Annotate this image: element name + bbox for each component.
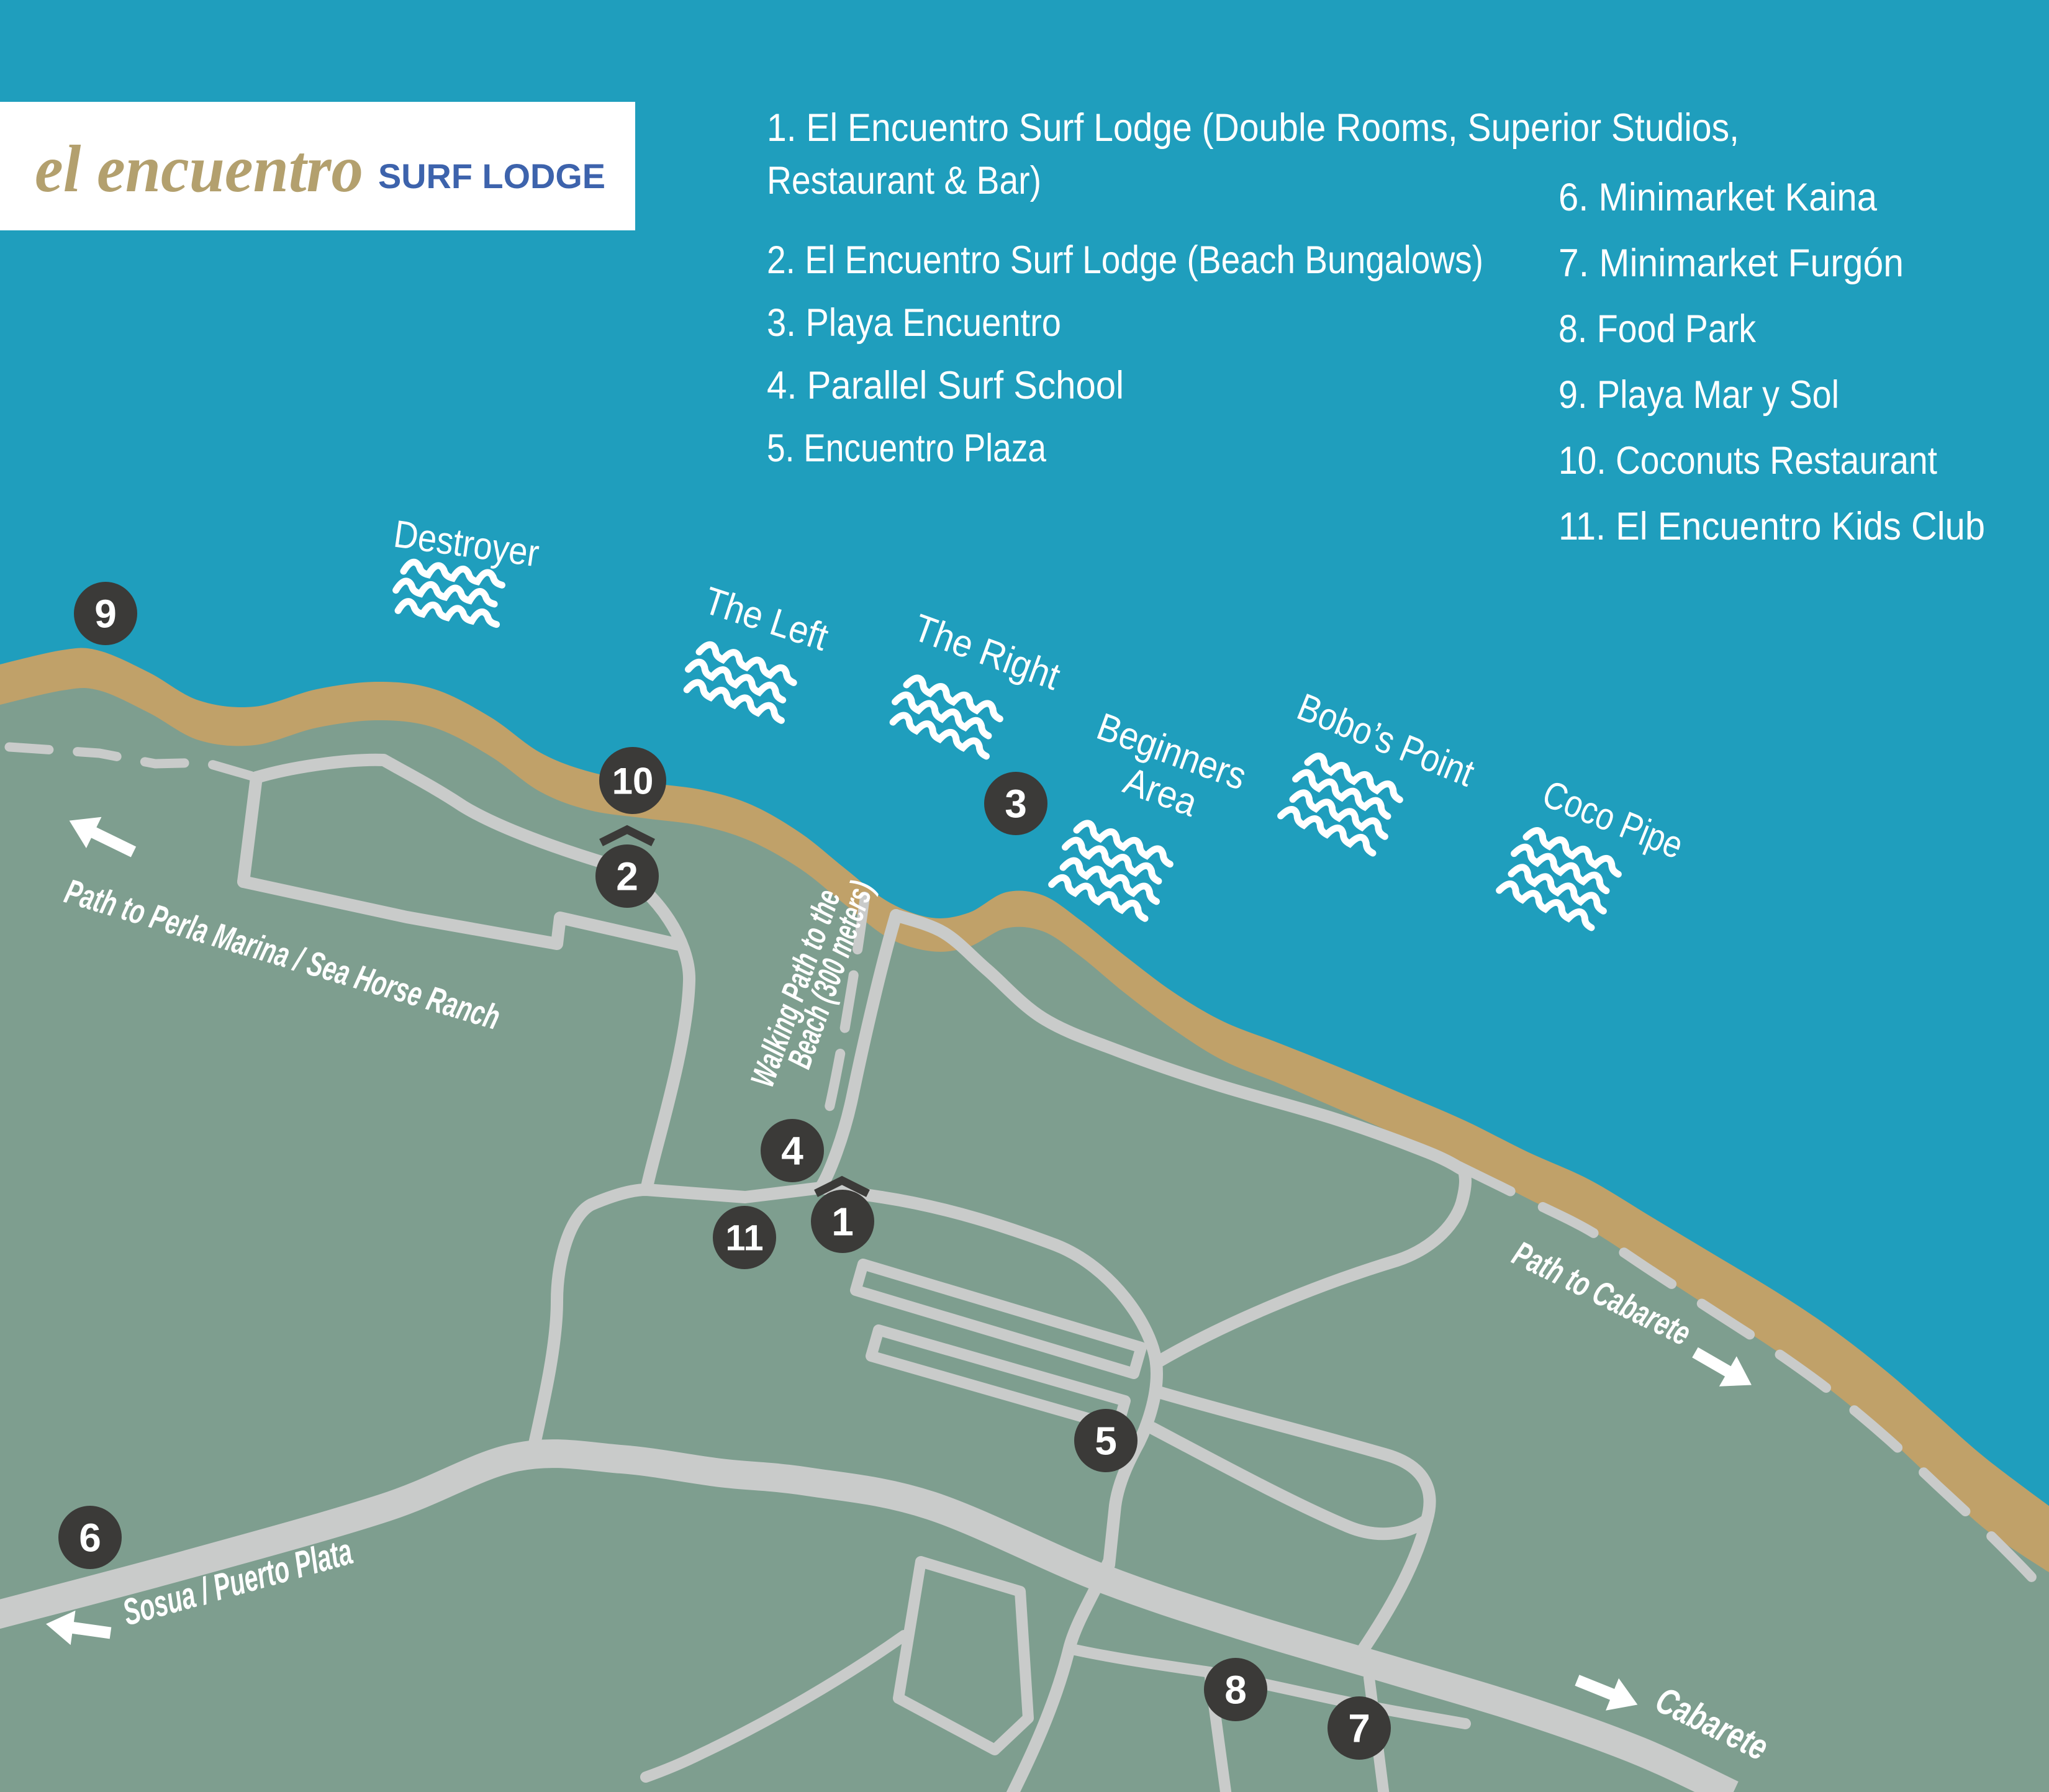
svg-text:3. Playa Encuentro: 3. Playa Encuentro: [767, 301, 1061, 345]
svg-text:1. El Encuentro Surf Lodge (Do: 1. El Encuentro Surf Lodge (Double Rooms…: [767, 106, 1739, 150]
svg-text:10. Coconuts Restaurant: 10. Coconuts Restaurant: [1558, 439, 1937, 482]
svg-text:4: 4: [781, 1129, 803, 1174]
svg-text:7. Minimarket Furgón: 7. Minimarket Furgón: [1558, 242, 1904, 285]
svg-text:8: 8: [1224, 1668, 1247, 1713]
svg-text:5. Encuentro Plaza: 5. Encuentro Plaza: [767, 427, 1047, 470]
svg-text:4. Parallel Surf School: 4. Parallel Surf School: [767, 364, 1124, 407]
svg-text:6. Minimarket Kaina: 6. Minimarket Kaina: [1558, 176, 1878, 219]
svg-text:el encuentro: el encuentro: [35, 132, 363, 206]
svg-text:8. Food Park: 8. Food Park: [1558, 307, 1756, 351]
svg-text:Restaurant & Bar): Restaurant & Bar): [767, 159, 1041, 202]
svg-text:11: 11: [725, 1218, 763, 1259]
svg-text:9. Playa Mar y Sol: 9. Playa Mar y Sol: [1558, 373, 1839, 417]
svg-text:10: 10: [612, 760, 654, 802]
svg-text:2. El Encuentro Surf Lodge (Be: 2. El Encuentro Surf Lodge (Beach Bungal…: [767, 238, 1483, 282]
svg-text:2: 2: [616, 854, 638, 899]
svg-text:5: 5: [1095, 1419, 1117, 1464]
svg-text:9: 9: [94, 592, 117, 636]
svg-text:SURF LODGE: SURF LODGE: [378, 156, 605, 196]
svg-text:7: 7: [1348, 1706, 1370, 1751]
svg-text:11. El Encuentro Kids Club: 11. El Encuentro Kids Club: [1558, 505, 1985, 548]
svg-text:1: 1: [831, 1200, 854, 1244]
svg-text:3: 3: [1005, 782, 1027, 826]
svg-text:6: 6: [79, 1516, 101, 1560]
